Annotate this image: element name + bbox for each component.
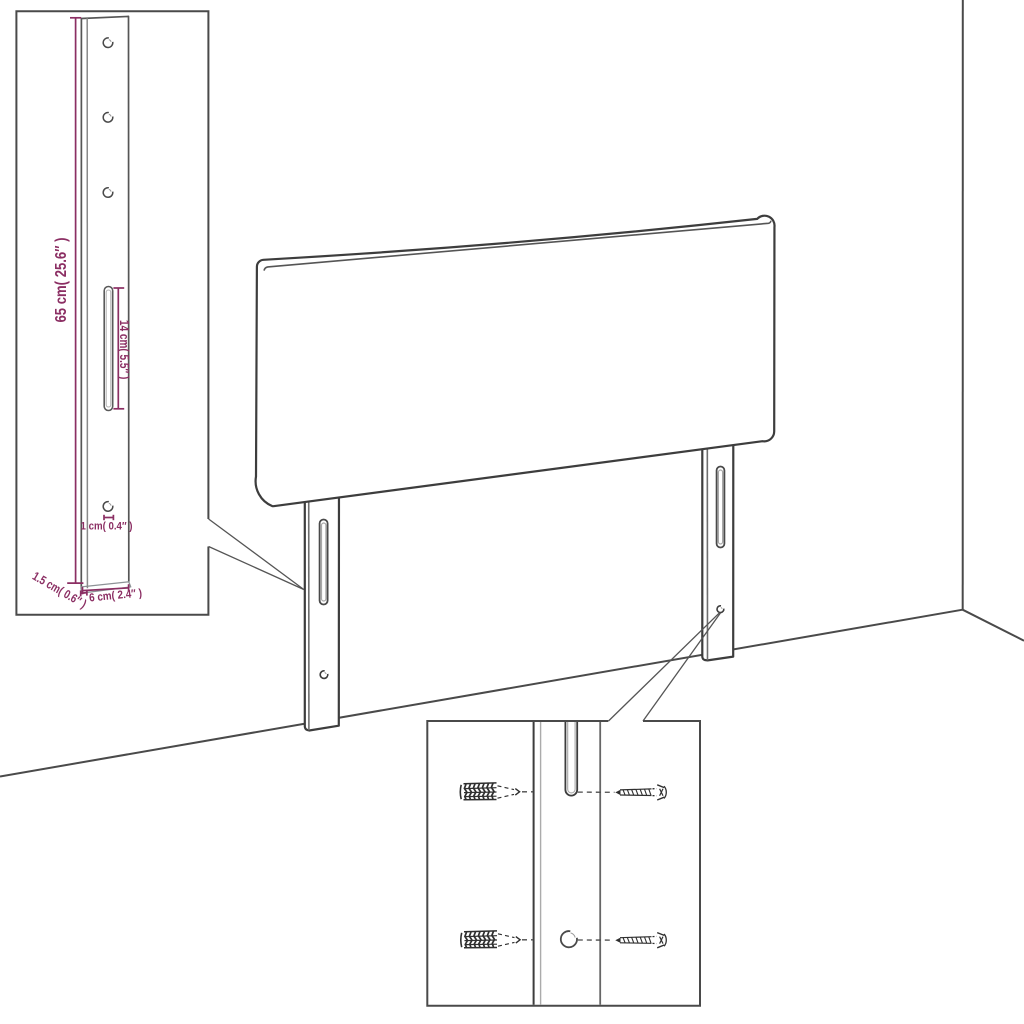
svg-text:65 cm( 25.6″ ): 65 cm( 25.6″ ) [53, 238, 70, 323]
svg-text:1 cm( 0.4″ ): 1 cm( 0.4″ ) [81, 521, 133, 533]
svg-text:14 cm( 5.5″ ): 14 cm( 5.5″ ) [117, 320, 132, 379]
